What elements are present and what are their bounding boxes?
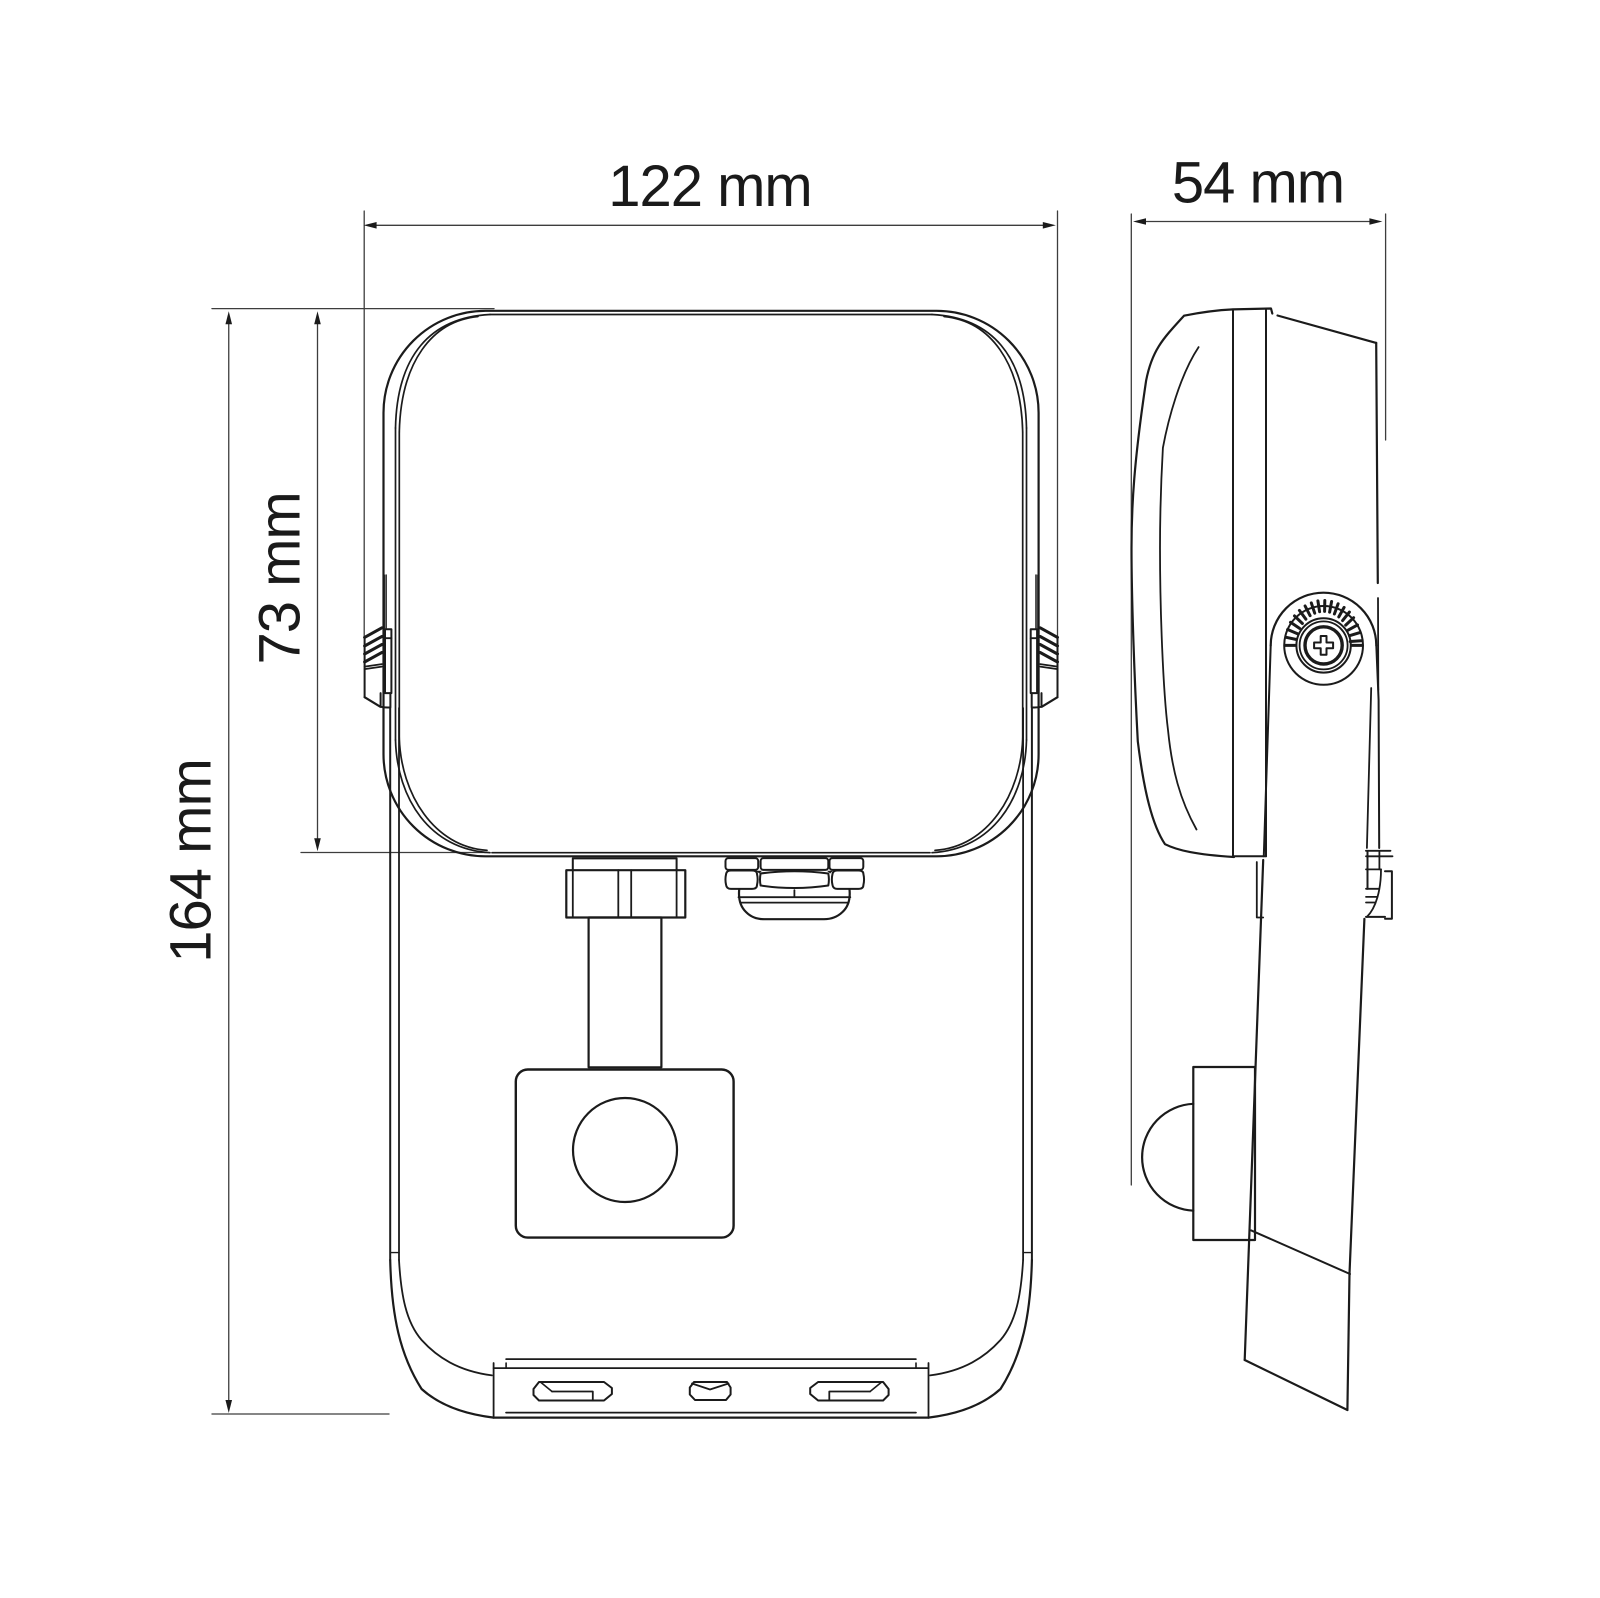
svg-text:73 mm: 73 mm xyxy=(248,492,313,664)
svg-text:54 mm: 54 mm xyxy=(1172,151,1344,216)
svg-text:164 mm: 164 mm xyxy=(159,759,224,963)
svg-text:122 mm: 122 mm xyxy=(608,154,812,219)
